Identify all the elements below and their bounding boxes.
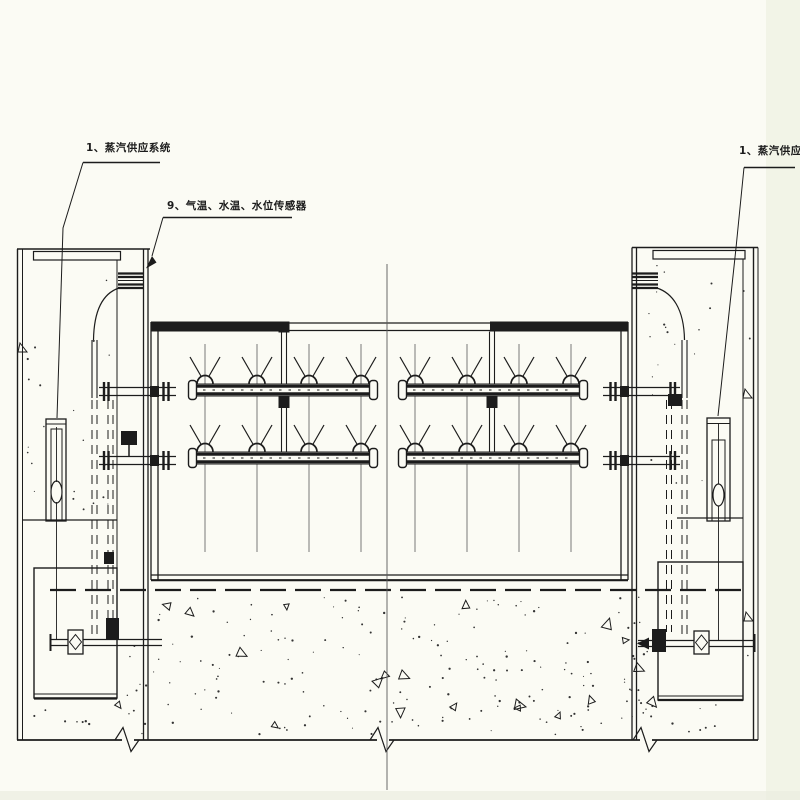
concrete-dot <box>442 720 444 722</box>
concrete-dot <box>646 651 647 652</box>
steam-header-pipe <box>490 322 628 332</box>
concrete-dot <box>370 733 372 735</box>
line-work <box>104 552 114 564</box>
concrete-dot <box>195 693 196 694</box>
concrete-dot <box>286 729 288 731</box>
concrete-dot <box>749 338 751 340</box>
concrete-dot <box>43 426 45 428</box>
concrete-dot <box>358 610 359 611</box>
concrete-dot <box>342 647 343 648</box>
concrete-dot <box>676 482 678 484</box>
concrete-dot <box>442 677 444 679</box>
concrete-dot <box>102 496 104 498</box>
concrete-dot <box>639 622 640 623</box>
concrete-dot <box>633 622 635 624</box>
concrete-dot <box>85 720 87 722</box>
concrete-dot <box>93 340 95 342</box>
concrete-dot <box>212 664 214 666</box>
concrete-dot <box>212 610 214 612</box>
concrete-dot <box>587 709 589 711</box>
concrete-dot <box>284 727 286 729</box>
concrete-dot <box>506 655 508 657</box>
concrete-dot <box>656 291 657 292</box>
concrete-dot <box>342 617 343 618</box>
concrete-dot <box>621 717 622 718</box>
concrete-dot <box>638 699 640 701</box>
concrete-dot <box>700 708 701 709</box>
concrete-dot <box>359 654 360 655</box>
concrete-dot <box>431 640 432 641</box>
scan-edge-right <box>766 0 800 800</box>
concrete-dot <box>564 669 565 670</box>
concrete-dot <box>592 685 594 687</box>
concrete-dot <box>379 721 381 723</box>
concrete-dot <box>618 612 619 613</box>
concrete-dot <box>129 656 130 657</box>
concrete-dot <box>624 682 625 683</box>
concrete-dot <box>627 627 629 629</box>
concrete-dot <box>705 727 707 729</box>
line-work <box>620 455 629 466</box>
concrete-dot <box>304 724 306 726</box>
concrete-dot <box>180 661 181 662</box>
concrete-dot <box>405 617 406 618</box>
concrete-dot <box>665 327 666 328</box>
concrete-dot <box>219 668 220 669</box>
concrete-dot <box>538 607 539 608</box>
concrete-dot <box>200 709 201 710</box>
concrete-dot <box>83 440 85 442</box>
concrete-dot <box>699 729 701 731</box>
concrete-dot <box>567 642 569 644</box>
concrete-dot <box>434 624 435 625</box>
concrete-dot <box>324 639 326 641</box>
concrete-dot <box>215 697 217 699</box>
concrete-dot <box>279 728 281 730</box>
concrete-dot <box>364 710 366 712</box>
line-work <box>279 395 290 408</box>
concrete-dot <box>191 635 193 637</box>
concrete-dot <box>361 623 363 625</box>
concrete-dot <box>648 313 649 314</box>
concrete-dot <box>27 452 29 454</box>
concrete-dot <box>638 597 639 598</box>
concrete-dot <box>557 710 558 711</box>
concrete-dot <box>399 691 401 693</box>
concrete-dot <box>650 459 652 461</box>
concrete-dot <box>533 660 535 662</box>
concrete-dot <box>141 733 142 734</box>
concrete-dot <box>440 655 442 657</box>
pier-cap <box>34 252 121 261</box>
concrete-dot <box>34 346 36 348</box>
concrete-dot <box>600 722 602 724</box>
concrete-dot <box>487 600 488 601</box>
concrete-dot <box>546 721 548 723</box>
concrete-dot <box>652 376 653 377</box>
concrete-dot <box>497 706 498 707</box>
concrete-dot <box>28 378 30 380</box>
concrete-dot <box>582 729 584 731</box>
line-work <box>487 395 498 408</box>
concrete-dot <box>135 689 137 691</box>
gate-heating-system-drawing: 1、蒸汽供应系统 9、气温、水温、水位传感器 1、蒸汽供应系统 <box>0 0 800 800</box>
concrete-dot <box>345 600 347 602</box>
pier-cap <box>653 251 745 260</box>
concrete-dot <box>476 609 477 610</box>
concrete-dot <box>107 503 108 504</box>
concrete-dot <box>466 659 467 660</box>
concrete-dot <box>587 705 589 707</box>
concrete-dot <box>109 354 110 355</box>
concrete-dot <box>480 710 482 712</box>
concrete-dot <box>406 699 407 700</box>
concrete-dot <box>498 604 499 605</box>
label-sensors: 9、气温、水温、水位传感器 <box>167 199 307 212</box>
concrete-dot <box>539 718 540 719</box>
pipe-end-cap <box>370 449 378 468</box>
pump-block <box>652 629 666 652</box>
concrete-dot <box>144 723 146 725</box>
concrete-dot <box>637 689 639 691</box>
concrete-dot <box>278 639 280 641</box>
concrete-dot <box>323 705 325 707</box>
concrete-dot <box>93 502 95 504</box>
concrete-dot <box>642 712 644 714</box>
concrete-dot <box>494 695 496 697</box>
concrete-dot <box>447 693 449 695</box>
concrete-dot <box>83 508 85 510</box>
line-work <box>279 322 290 333</box>
concrete-dot <box>573 713 575 715</box>
concrete-dot <box>340 711 341 712</box>
concrete-dot <box>649 336 650 337</box>
steam-supply-cylinder <box>46 419 66 521</box>
concrete-dot <box>698 329 700 331</box>
concrete-dot <box>258 733 260 735</box>
engineering-drawing-sheet: 1、蒸汽供应系统 9、气温、水温、水位传感器 1、蒸汽供应系统 <box>0 0 800 800</box>
concrete-dot <box>506 670 508 672</box>
concrete-dot <box>263 681 265 683</box>
concrete-dot <box>714 725 716 727</box>
concrete-dot <box>483 677 485 679</box>
concrete-dot <box>715 704 716 705</box>
concrete-dot <box>747 655 749 657</box>
concrete-dot <box>157 619 159 621</box>
concrete-dot <box>197 598 199 600</box>
concrete-dot <box>34 491 35 492</box>
concrete-dot <box>347 718 348 719</box>
label-steam-supply-left: 1、蒸汽供应系统 <box>86 141 171 154</box>
concrete-dot <box>204 689 205 690</box>
concrete-dot <box>231 713 232 714</box>
concrete-dot <box>694 353 695 354</box>
concrete-dot <box>227 622 228 623</box>
pipe-end-cap <box>580 381 588 400</box>
concrete-dot <box>128 713 129 714</box>
pipe-end-cap <box>189 381 197 400</box>
concrete-dot <box>313 652 314 653</box>
concrete-dot <box>666 331 668 333</box>
concrete-dot <box>540 667 541 668</box>
line-work <box>150 386 159 397</box>
concrete-dot <box>418 725 420 727</box>
concrete-dot <box>575 632 577 634</box>
concrete-dot <box>127 695 128 696</box>
concrete-dot <box>303 691 305 693</box>
concrete-dot <box>645 708 646 709</box>
concrete-dot <box>629 689 631 691</box>
concrete-dot <box>640 702 642 704</box>
pipe-end-cap <box>370 381 378 400</box>
concrete-dot <box>324 597 325 598</box>
concrete-dot <box>663 323 665 325</box>
concrete-dot <box>590 673 591 674</box>
concrete-dot <box>169 682 170 683</box>
concrete-dot <box>391 721 393 723</box>
concrete-dot <box>73 491 75 493</box>
concrete-dot <box>571 673 573 675</box>
concrete-dot <box>291 639 293 641</box>
concrete-dot <box>401 596 403 598</box>
concrete-dot <box>476 656 478 658</box>
concrete-dot <box>76 721 78 723</box>
concrete-dot <box>491 730 492 731</box>
concrete-dot <box>167 704 169 706</box>
concrete-dot <box>477 668 479 670</box>
concrete-dot <box>664 271 665 272</box>
pump-block <box>106 618 119 640</box>
concrete-dot <box>133 710 135 712</box>
concrete-dot <box>251 604 253 606</box>
concrete-dot <box>505 651 506 652</box>
concrete-dot <box>499 700 501 702</box>
concrete-dot <box>709 307 711 309</box>
concrete-dot <box>626 700 628 702</box>
line-work <box>620 386 629 397</box>
valve-actuator <box>121 431 137 445</box>
concrete-dot <box>710 282 712 284</box>
concrete-dot <box>158 659 159 660</box>
concrete-dot <box>565 662 566 663</box>
concrete-dot <box>583 676 584 677</box>
concrete-dot <box>403 621 405 623</box>
pipe-end-cap <box>399 381 407 400</box>
concrete-dot <box>153 671 154 672</box>
concrete-dot <box>633 658 635 660</box>
steam-header-pipe <box>151 322 283 332</box>
concrete-dot <box>458 614 459 615</box>
concrete-dot <box>624 679 625 680</box>
concrete-dot <box>412 719 414 721</box>
concrete-dot <box>145 684 147 686</box>
concrete-dot <box>228 654 230 656</box>
concrete-dot <box>72 498 74 500</box>
concrete-dot <box>657 364 658 365</box>
concrete-dot <box>370 632 372 634</box>
concrete-dot <box>585 633 586 634</box>
concrete-dot <box>619 597 621 599</box>
concrete-dot <box>533 700 535 702</box>
concrete-dot <box>493 600 494 601</box>
concrete-dot <box>580 726 581 727</box>
concrete-dot <box>216 678 218 680</box>
label-steam-supply-right: 1、蒸汽供应系统 <box>739 144 800 157</box>
concrete-dot <box>27 358 29 360</box>
concrete-dot <box>515 605 517 607</box>
concrete-dot <box>172 644 173 645</box>
concrete-dot <box>291 678 293 680</box>
concrete-dot <box>139 684 140 685</box>
concrete-dot <box>159 614 160 615</box>
concrete-dot <box>393 702 394 703</box>
concrete-dot <box>288 659 289 660</box>
concrete-dot <box>570 715 572 717</box>
concrete-dot <box>106 280 108 282</box>
pipe-end-cap <box>189 449 197 468</box>
concrete-dot <box>473 627 475 629</box>
concrete-dot <box>64 720 66 722</box>
scan-edge-bottom <box>0 791 800 800</box>
concrete-dot <box>587 661 589 663</box>
concrete-dot <box>437 644 439 646</box>
concrete-dot <box>39 384 41 386</box>
concrete-dot <box>383 612 385 614</box>
concrete-dot <box>217 690 219 692</box>
concrete-dot <box>309 715 311 717</box>
concrete-dot <box>82 721 84 723</box>
concrete-dot <box>302 672 304 674</box>
concrete-dot <box>28 447 29 448</box>
valve-actuator <box>668 394 682 406</box>
line-work <box>150 455 159 466</box>
concrete-dot <box>583 685 584 686</box>
concrete-dot <box>520 601 521 602</box>
concrete-dot <box>702 480 703 481</box>
concrete-dot <box>656 265 657 266</box>
concrete-dot <box>172 722 174 724</box>
concrete-dot <box>358 606 360 608</box>
concrete-dot <box>413 638 415 640</box>
valve-icon <box>68 630 83 654</box>
concrete-dot <box>277 682 279 684</box>
concrete-dot <box>31 463 33 465</box>
concrete-dot <box>33 715 35 717</box>
concrete-dot <box>333 606 334 607</box>
concrete-dot <box>250 619 251 620</box>
concrete-dot <box>284 683 286 685</box>
concrete-dot <box>447 641 448 642</box>
concrete-dot <box>542 689 544 691</box>
concrete-dot <box>442 717 443 718</box>
concrete-dot <box>448 668 450 670</box>
concrete-dot <box>369 690 371 692</box>
concrete-dot <box>401 628 402 629</box>
concrete-dot <box>569 696 571 698</box>
concrete-dot <box>429 686 431 688</box>
concrete-dot <box>650 715 652 717</box>
concrete-dot <box>352 728 353 729</box>
concrete-dot <box>526 650 527 651</box>
concrete-dot <box>271 630 273 632</box>
concrete-dot <box>469 718 471 720</box>
pipe-end-cap <box>580 449 588 468</box>
concrete-dot <box>482 663 484 665</box>
concrete-dot <box>688 731 690 733</box>
concrete-dot <box>217 676 219 678</box>
concrete-dot <box>521 669 523 671</box>
concrete-dot <box>643 653 645 655</box>
pipe-end-cap <box>399 449 407 468</box>
concrete-dot <box>674 344 675 345</box>
concrete-dot <box>525 614 526 615</box>
concrete-dot <box>529 696 531 698</box>
concrete-dot <box>88 723 90 725</box>
concrete-dot <box>284 638 285 639</box>
concrete-dot <box>200 660 202 662</box>
concrete-dot <box>44 709 46 711</box>
concrete-dot <box>418 636 420 638</box>
concrete-dot <box>493 669 495 671</box>
concrete-dot <box>555 734 557 736</box>
concrete-dot <box>271 614 273 616</box>
concrete-dot <box>73 410 74 411</box>
concrete-dot <box>533 610 535 612</box>
concrete-dot <box>671 722 673 724</box>
concrete-dot <box>243 635 244 636</box>
concrete-dot <box>495 679 497 681</box>
concrete-dot <box>261 650 262 651</box>
